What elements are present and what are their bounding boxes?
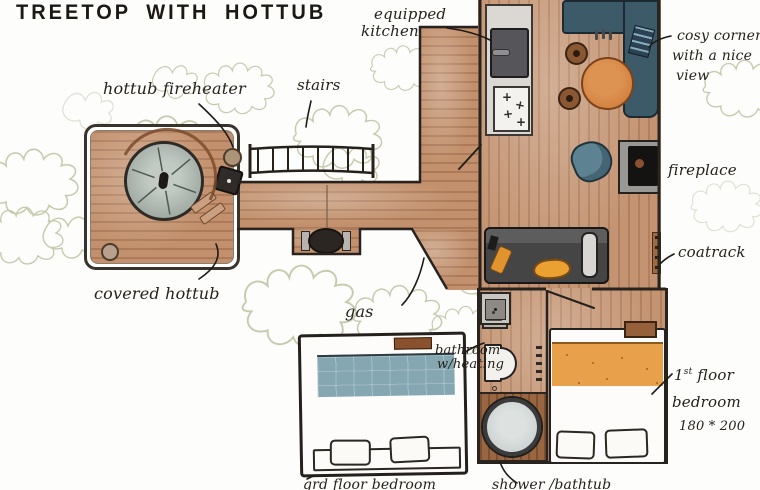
floor-plan-sketch: + + + + bbox=[0, 0, 760, 490]
leader-lines bbox=[199, 28, 674, 483]
label-fireplace: fireplace bbox=[668, 162, 737, 179]
label-line-dimensions: 180 * 200 bbox=[679, 418, 745, 435]
label-first-floor-bedroom: 1st floor bedroom 180 * 200 bbox=[674, 364, 745, 435]
page-title: TREETOP WITH HOTTUB bbox=[16, 2, 326, 26]
ladder bbox=[250, 144, 373, 178]
label-shower-bathtub: shower /bathtub bbox=[492, 477, 611, 490]
label-equipped-kitchen: equipped kitchen bbox=[361, 6, 446, 40]
ink-strokes bbox=[0, 0, 760, 490]
label-ground-floor-bedroom: grd floor bedroom bbox=[303, 477, 436, 490]
label-hottub-fireheater: hottub fireheater bbox=[103, 80, 246, 97]
label-cosy-corner: cosy corner with a nice view bbox=[672, 26, 760, 86]
label-stairs: stairs bbox=[297, 77, 341, 94]
hottub-details bbox=[125, 129, 216, 214]
walls bbox=[237, 0, 666, 462]
label-coatrack: coatrack bbox=[678, 244, 746, 261]
label-line-bedroom: bedroom bbox=[672, 394, 745, 411]
label-covered-hottub: covered hottub bbox=[94, 285, 220, 302]
label-line-1st-floor: 1st floor bbox=[674, 364, 745, 384]
label-gas: gas bbox=[345, 303, 374, 320]
label-bathroom: bathroom w/heating bbox=[435, 344, 504, 372]
